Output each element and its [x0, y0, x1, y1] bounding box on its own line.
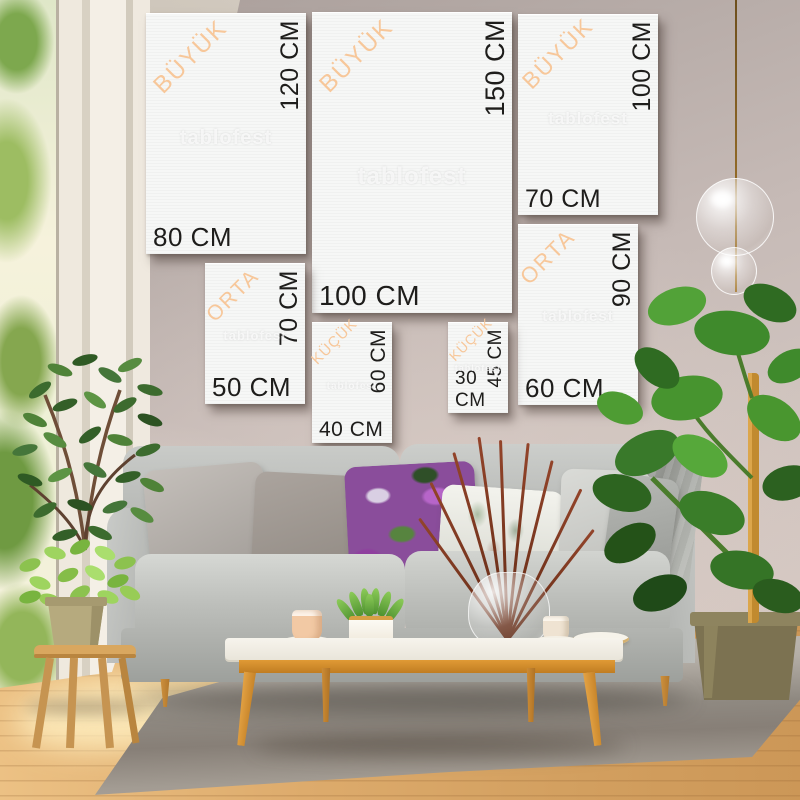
monstera-plant	[592, 278, 800, 708]
watermark: tablofest	[312, 163, 512, 191]
width-dimension-label: 70 CM	[525, 185, 601, 214]
watermark: tablofest	[205, 328, 305, 343]
living-room-size-guide-scene: BÜYÜK 120 CM 80 CM tablofest BÜYÜK 150 C…	[0, 0, 800, 800]
canvas-50x70: ORTA 70 CM 50 CM tablofest	[205, 263, 305, 404]
width-dimension-label: 50 CM	[212, 372, 291, 403]
size-category-label: BÜYÜK	[143, 9, 239, 105]
canvas-30x45: KÜÇÜK 45 CM 30 CM tablofest	[448, 322, 508, 413]
watermark: tablofest	[146, 127, 306, 150]
ficus-plant-and-stool	[0, 335, 170, 755]
wooden-stool	[34, 645, 136, 748]
succulent-leaf	[365, 594, 374, 616]
glass-highlight	[720, 256, 734, 266]
width-dimension-label: 100 CM	[319, 280, 420, 312]
size-category-label: ORTA	[194, 257, 271, 334]
width-dimension-label: 80 CM	[153, 222, 232, 253]
size-category-label: BÜYÜK	[309, 8, 405, 104]
height-dimension-label: 120 CM	[276, 20, 305, 111]
height-dimension-label: 150 CM	[480, 19, 511, 117]
size-category-label: BÜYÜK	[512, 8, 603, 99]
canvas-40x60: KÜÇÜK 60 CM 40 CM tablofest	[312, 322, 392, 443]
monstera-leaves	[592, 278, 800, 619]
width-dimension-label: 30 CM	[455, 368, 508, 412]
canvas-100x150: BÜYÜK 150 CM 100 CM tablofest	[312, 12, 512, 313]
coffee-table	[225, 580, 625, 750]
watermark: tablofest	[518, 109, 658, 129]
table-leg	[525, 668, 537, 722]
canvas-70x100: BÜYÜK 100 CM 70 CM tablofest	[518, 14, 658, 215]
table-leg	[320, 668, 332, 722]
glass-highlight	[711, 191, 733, 207]
table-top	[225, 638, 623, 660]
table-apron	[239, 660, 615, 673]
glass-globe-large	[696, 178, 774, 256]
table-leg	[233, 671, 259, 747]
height-dimension-label: 100 CM	[628, 21, 657, 112]
watermark: tablofest	[448, 363, 508, 373]
canvas-80x120: BÜYÜK 120 CM 80 CM tablofest	[146, 13, 306, 254]
watermark: tablofest	[312, 381, 392, 392]
size-category-label: ORTA	[507, 216, 589, 298]
